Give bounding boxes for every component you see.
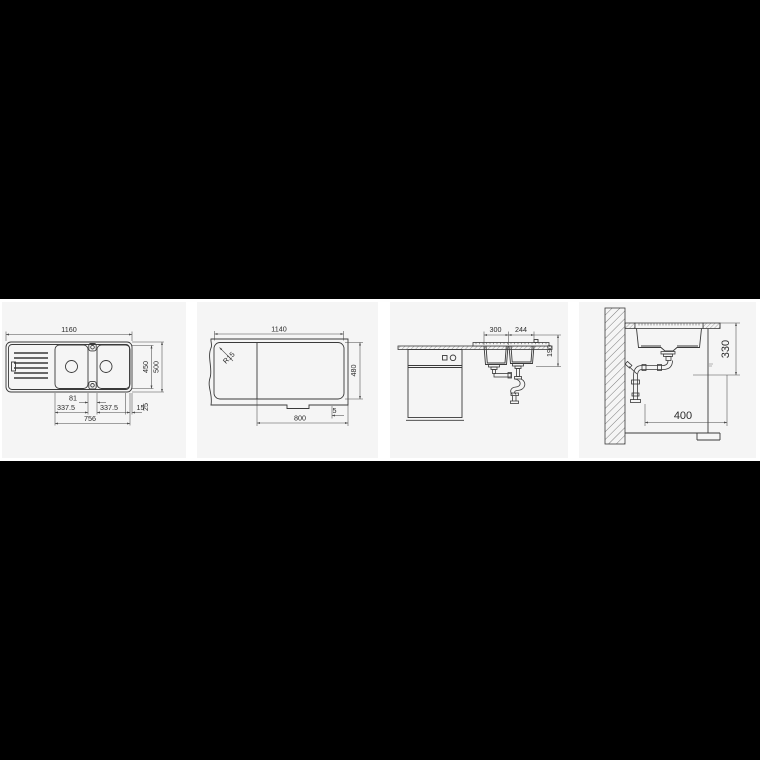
drain-plumbing: [489, 364, 525, 404]
dim-label-bowl-depth: 190: [545, 345, 554, 357]
dimension-cutout-width: 1140: [215, 325, 344, 341]
dim-label-min-depth: 400: [674, 410, 692, 422]
cutout-outline: [214, 343, 344, 400]
dim-label-inner-depth: 450: [141, 361, 150, 373]
wall-section: [605, 308, 625, 444]
dim-label-left-bowl-width: 300: [490, 325, 502, 334]
dim-label-rim-width: 25: [141, 403, 150, 411]
dimension-bowl-widths: 300 244: [484, 325, 534, 345]
drain-plumbing: [625, 352, 675, 403]
dim-label-right-bowl: 337.5: [100, 403, 118, 412]
dimension-min-depth: 400: [645, 375, 727, 426]
top-view-drawing: 1160 450 500 81: [2, 302, 186, 458]
product-spec-sheet: { "page": { "background_color": "#000000…: [0, 0, 760, 760]
dimension-install-height: 330: [693, 323, 740, 375]
panel-top-view: 1160 450 500 81: [2, 302, 186, 458]
worktop-outline: [209, 339, 348, 409]
drainboard: [12, 353, 49, 378]
dim-label-center-gap: 81: [69, 394, 77, 403]
dim-label-min-cabinet: 800: [294, 413, 306, 422]
dimension-depths: 450 500: [132, 342, 164, 392]
dimension-bowls: 81 337.5 337.5 15 25 756: [55, 393, 150, 426]
front-view-drawing: 300 244 190: [390, 302, 568, 458]
tap-hole: [534, 340, 538, 343]
dim-label-cutout-depth: 480: [349, 365, 358, 377]
dim-label-right-bowl-width: 244: [515, 325, 527, 334]
dimension-total-width: 1160: [6, 325, 132, 341]
rim-ticks: [639, 324, 699, 326]
dim-label-corner-radius: R15: [221, 350, 237, 366]
cutout-drawing: R15 1140 480 800: [197, 302, 378, 458]
dim-label-total-width: 1160: [61, 325, 76, 334]
dim-label-cutout-width: 1140: [271, 325, 286, 334]
panel-front-view: 300 244 190: [390, 302, 568, 458]
dim-label-install-height: 330: [720, 340, 732, 358]
bowl-right: [97, 345, 130, 389]
bowl-middle: [55, 345, 88, 389]
dimension-front-clearance: 5: [332, 406, 344, 419]
dim-label-outer-depth: 500: [152, 361, 161, 373]
bowl-section: [637, 329, 702, 352]
panel-side-view: 330 400: [579, 302, 756, 458]
drawings-strip: 1160 450 500 81: [0, 299, 760, 461]
panel-cutout-template: R15 1140 480 800: [197, 302, 378, 458]
dim-label-left-bowl: 337.5: [57, 403, 75, 412]
dimension-corner-radius: R15: [220, 348, 237, 366]
dim-label-bowls-span: 756: [84, 414, 96, 423]
worktop: [398, 346, 552, 350]
divider-fittings: [89, 344, 96, 390]
dim-label-front-clearance: 5: [333, 406, 337, 415]
sink-outline: [6, 342, 132, 392]
cabinet: [406, 350, 464, 421]
side-view-drawing: 330 400: [579, 302, 756, 458]
